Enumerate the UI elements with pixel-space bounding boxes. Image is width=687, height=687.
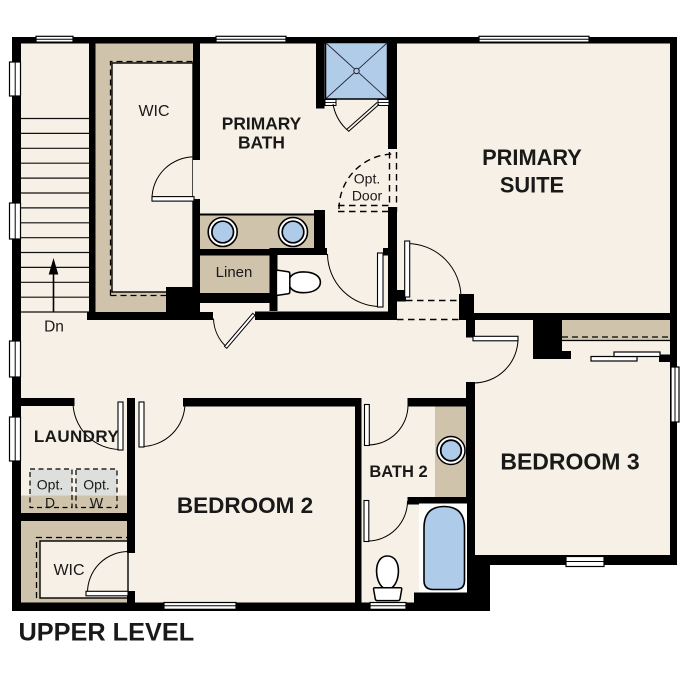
svg-text:D: D	[45, 495, 55, 511]
svg-text:WIC: WIC	[53, 562, 84, 579]
svg-text:SUITE: SUITE	[500, 173, 564, 198]
svg-text:Opt.: Opt.	[83, 477, 109, 493]
svg-text:BATH 2: BATH 2	[369, 463, 427, 481]
svg-text:LAUNDRY: LAUNDRY	[34, 427, 120, 446]
svg-text:BEDROOM 3: BEDROOM 3	[500, 449, 639, 475]
svg-text:W: W	[90, 495, 104, 511]
svg-text:BATH: BATH	[238, 133, 285, 153]
svg-text:PRIMARY: PRIMARY	[222, 114, 302, 134]
svg-text:Opt.: Opt.	[354, 171, 380, 187]
svg-text:Linen: Linen	[216, 264, 253, 281]
svg-text:WIC: WIC	[138, 103, 169, 120]
svg-text:BEDROOM 2: BEDROOM 2	[177, 493, 313, 518]
svg-text:Dn: Dn	[44, 319, 64, 336]
svg-text:PRIMARY: PRIMARY	[482, 145, 582, 170]
svg-text:UPPER LEVEL: UPPER LEVEL	[19, 619, 195, 647]
svg-text:Opt.: Opt.	[37, 477, 63, 493]
svg-text:Door: Door	[352, 188, 383, 204]
